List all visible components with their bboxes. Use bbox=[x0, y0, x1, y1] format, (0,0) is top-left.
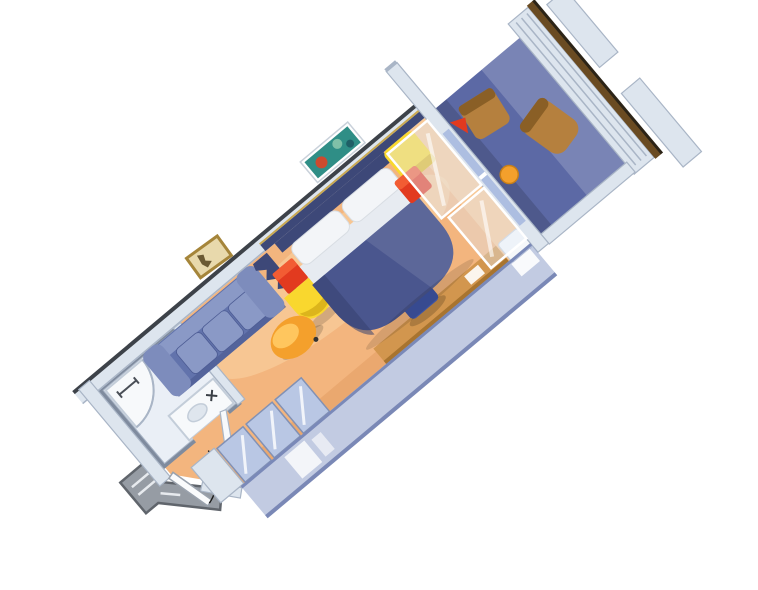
stateroom-floorplan-page bbox=[0, 0, 758, 590]
stateroom-floorplan-svg bbox=[0, 0, 758, 590]
scene bbox=[26, 0, 703, 576]
